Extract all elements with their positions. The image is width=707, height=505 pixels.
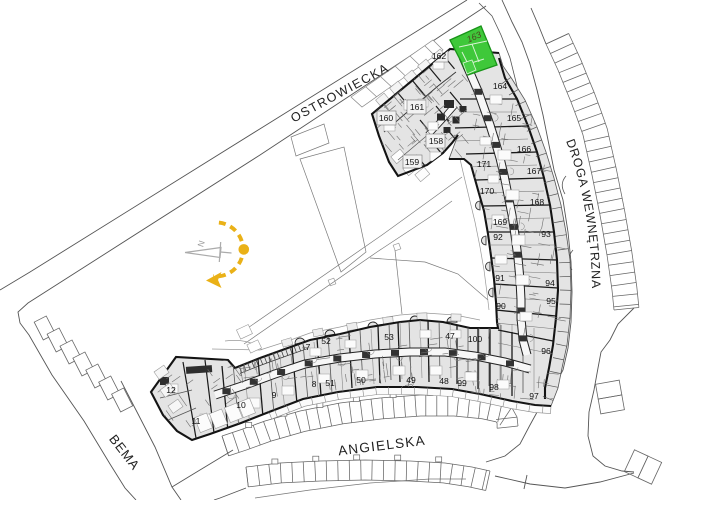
svg-text:164: 164 bbox=[493, 81, 508, 91]
svg-text:97: 97 bbox=[529, 391, 539, 401]
svg-text:7: 7 bbox=[306, 342, 311, 352]
svg-text:9: 9 bbox=[272, 390, 277, 400]
svg-text:159: 159 bbox=[405, 157, 420, 167]
svg-text:53: 53 bbox=[384, 332, 394, 342]
svg-text:98: 98 bbox=[489, 382, 499, 392]
svg-text:91: 91 bbox=[495, 273, 505, 283]
svg-text:96: 96 bbox=[541, 346, 551, 356]
svg-text:168: 168 bbox=[530, 197, 545, 207]
svg-text:12: 12 bbox=[166, 385, 176, 395]
svg-text:48: 48 bbox=[439, 376, 449, 386]
svg-text:92: 92 bbox=[493, 232, 503, 242]
svg-text:170: 170 bbox=[480, 186, 495, 196]
svg-text:169: 169 bbox=[493, 217, 508, 227]
svg-text:94: 94 bbox=[545, 278, 555, 288]
svg-text:162: 162 bbox=[432, 51, 447, 61]
svg-text:158: 158 bbox=[429, 136, 444, 146]
svg-text:90: 90 bbox=[496, 301, 506, 311]
svg-text:51: 51 bbox=[325, 378, 335, 388]
svg-text:100: 100 bbox=[468, 334, 483, 344]
svg-text:52: 52 bbox=[321, 336, 331, 346]
svg-text:99: 99 bbox=[457, 378, 467, 388]
svg-text:10: 10 bbox=[236, 400, 246, 410]
svg-text:47: 47 bbox=[445, 331, 455, 341]
svg-text:49: 49 bbox=[406, 375, 416, 385]
svg-text:95: 95 bbox=[546, 296, 556, 306]
svg-text:166: 166 bbox=[517, 144, 532, 154]
svg-text:167: 167 bbox=[527, 166, 542, 176]
svg-text:160: 160 bbox=[379, 113, 394, 123]
svg-text:50: 50 bbox=[356, 375, 366, 385]
svg-text:171: 171 bbox=[477, 159, 492, 169]
svg-text:165: 165 bbox=[507, 113, 522, 123]
svg-text:161: 161 bbox=[410, 102, 425, 112]
svg-text:93: 93 bbox=[541, 229, 551, 239]
svg-text:8: 8 bbox=[312, 379, 317, 389]
svg-text:11: 11 bbox=[192, 416, 201, 426]
